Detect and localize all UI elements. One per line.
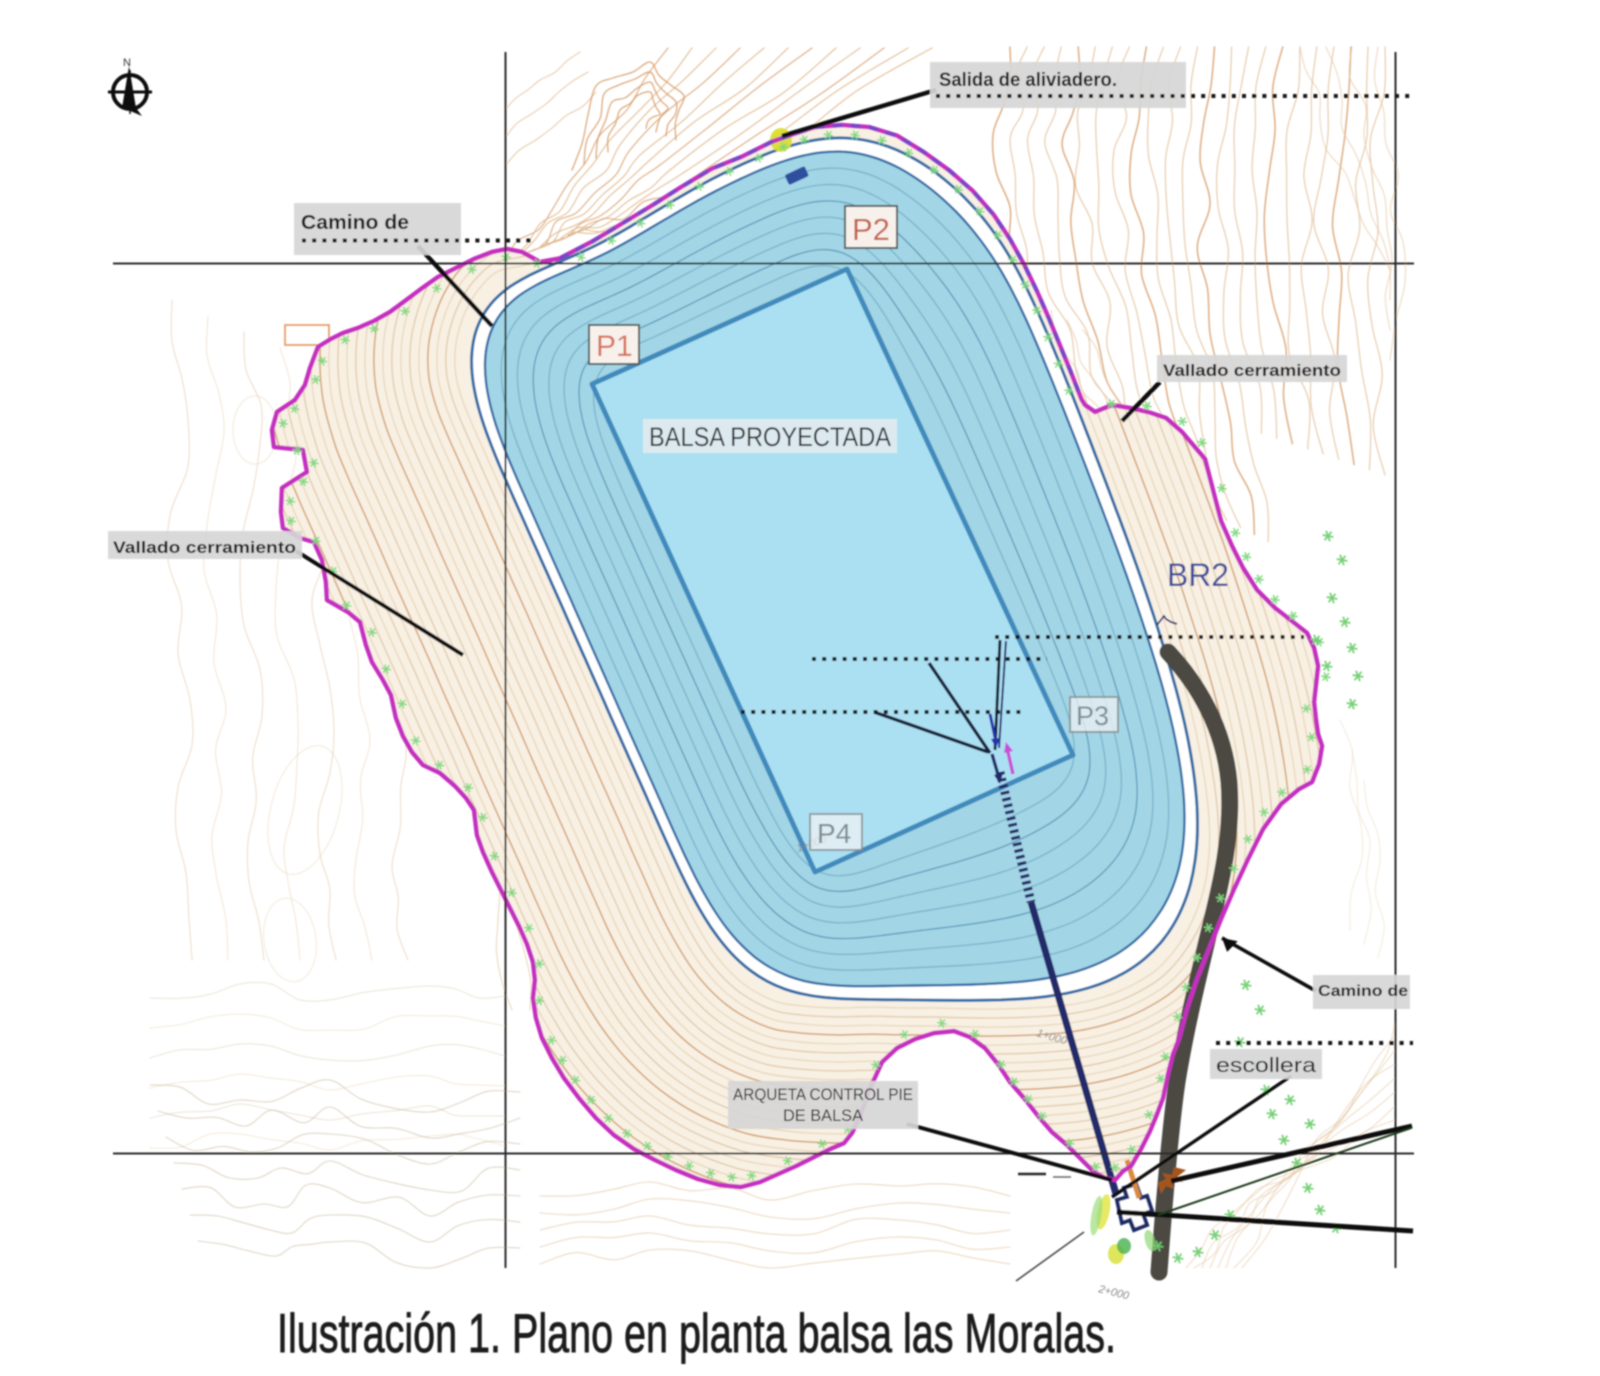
svg-text:Ilustración 1. Plano en planta: Ilustración 1. Plano en planta balsa las… bbox=[277, 1302, 1116, 1364]
svg-text:escollera: escollera bbox=[1216, 1055, 1317, 1077]
svg-text:P2: P2 bbox=[852, 212, 890, 247]
svg-text:P3: P3 bbox=[1076, 701, 1109, 731]
svg-text:Salida de aliviadero.: Salida de aliviadero. bbox=[939, 70, 1117, 91]
svg-text:DE BALSA: DE BALSA bbox=[783, 1106, 864, 1125]
svg-text:BR2: BR2 bbox=[1167, 557, 1229, 593]
svg-text:P4: P4 bbox=[817, 818, 851, 849]
svg-text:Vallado cerramiento: Vallado cerramiento bbox=[113, 538, 296, 557]
svg-text:Camino de: Camino de bbox=[1318, 983, 1408, 1000]
svg-text:BALSA PROYECTADA: BALSA PROYECTADA bbox=[649, 422, 891, 452]
svg-text:N: N bbox=[123, 57, 131, 69]
svg-text:Vallado cerramiento: Vallado cerramiento bbox=[1163, 361, 1341, 380]
svg-text:ARQUETA CONTROL PIE: ARQUETA CONTROL PIE bbox=[733, 1085, 913, 1104]
svg-text:P1: P1 bbox=[596, 330, 633, 363]
svg-text:Camino de: Camino de bbox=[301, 212, 409, 234]
